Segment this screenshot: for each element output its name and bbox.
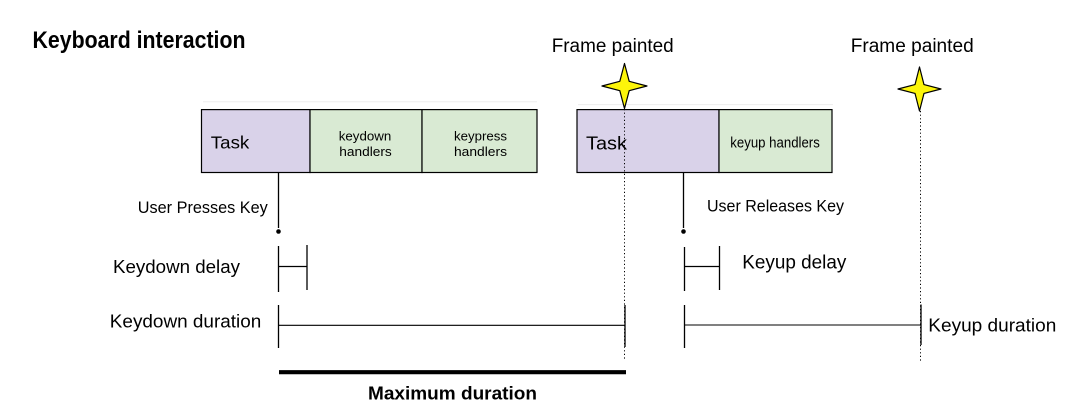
svg-text:Task: Task — [211, 133, 250, 153]
svg-text:Keyup delay: Keyup delay — [742, 253, 846, 274]
svg-text:Keydown duration: Keydown duration — [110, 311, 261, 331]
svg-text:User Presses Key: User Presses Key — [138, 198, 269, 217]
svg-text:Task: Task — [586, 133, 628, 154]
svg-text:keyup handlers: keyup handlers — [730, 136, 820, 152]
svg-text:handlers: handlers — [454, 144, 507, 159]
svg-text:Frame painted: Frame painted — [851, 36, 974, 57]
svg-text:keydown: keydown — [339, 128, 392, 143]
svg-text:handlers: handlers — [339, 144, 392, 159]
svg-text:Maximum duration: Maximum duration — [368, 382, 537, 403]
svg-text:User Releases Key: User Releases Key — [707, 196, 845, 215]
svg-text:Keyup duration: Keyup duration — [928, 314, 1056, 335]
svg-text:Keydown delay: Keydown delay — [113, 257, 240, 277]
svg-text:Frame painted: Frame painted — [552, 36, 674, 57]
svg-text:keypress: keypress — [454, 128, 507, 143]
svg-text:Keyboard interaction: Keyboard interaction — [33, 27, 246, 54]
